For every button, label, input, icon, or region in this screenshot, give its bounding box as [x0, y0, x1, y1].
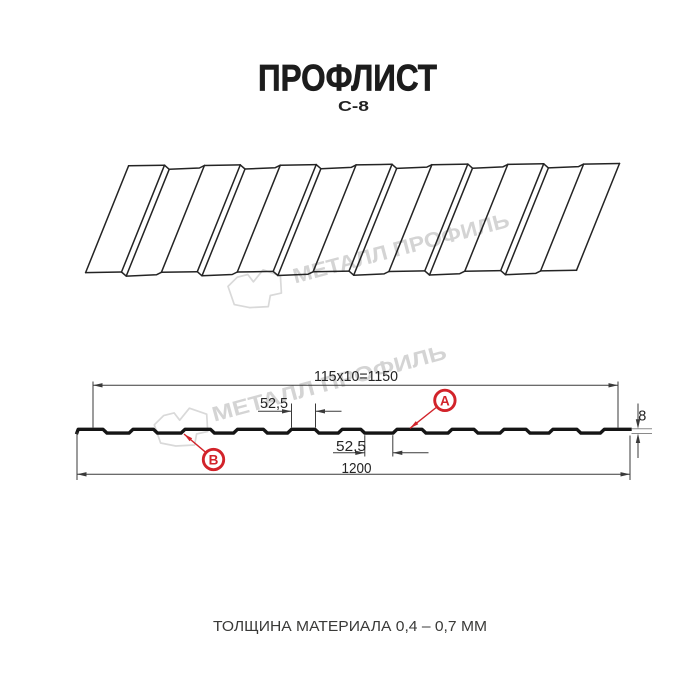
svg-text:ТОЛЩИНА МАТЕРИАЛА 0,4 – 0,7 ММ: ТОЛЩИНА МАТЕРИАЛА 0,4 – 0,7 ММ — [213, 618, 487, 635]
svg-text:С-8: С-8 — [338, 99, 369, 115]
svg-text:1200: 1200 — [342, 460, 372, 477]
svg-text:52,5: 52,5 — [260, 396, 288, 412]
svg-text:B: B — [209, 452, 219, 467]
svg-text:ПРОФЛИСТ: ПРОФЛИСТ — [258, 58, 437, 99]
svg-text:A: A — [440, 393, 450, 408]
svg-text:52,5: 52,5 — [336, 439, 366, 455]
svg-text:8: 8 — [638, 409, 646, 425]
svg-text:115х10=1150: 115х10=1150 — [314, 368, 398, 385]
